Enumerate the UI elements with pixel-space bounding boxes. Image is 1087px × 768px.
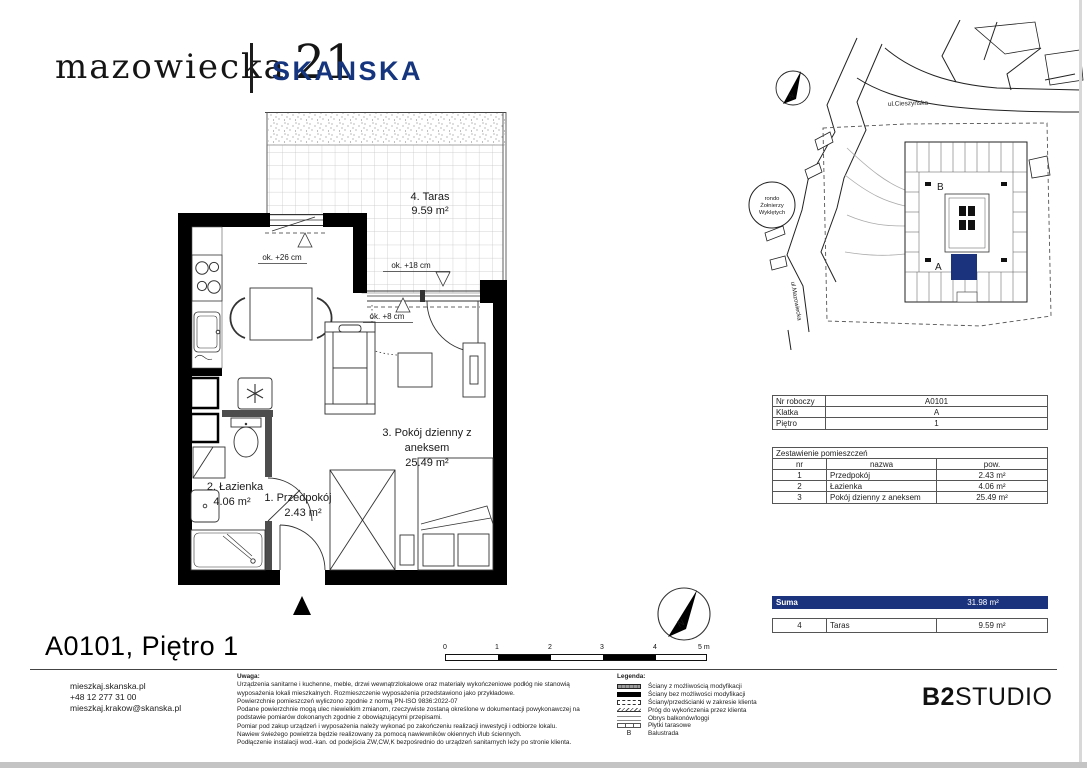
- terrace-name: Taras: [827, 619, 937, 632]
- studio-logo: B2STUDIO: [922, 683, 1052, 712]
- terrace-upper-band: [265, 112, 506, 145]
- entrance-arrow: [293, 596, 311, 615]
- room-name: Przedpokój: [827, 470, 937, 480]
- legend-threshold-icon: [617, 708, 641, 712]
- site-compass-icon: N: [776, 71, 810, 105]
- note-line: Powierzchnie pomieszczeń wyliczono zgodn…: [237, 698, 605, 706]
- bathroom-label: 2. Łazienka: [207, 481, 264, 493]
- terrace-area: 9.59 m²: [411, 205, 449, 217]
- hob-icon: [192, 255, 222, 301]
- contact-website-link[interactable]: mieszkaj.skanska.pl: [70, 681, 181, 692]
- legend-label: Ściany z możliwością modyfikacji: [648, 683, 742, 690]
- entrance-door: [280, 525, 325, 570]
- shower-icon: [191, 530, 265, 570]
- legend-label: Ściany/przedścianki w zakresie klienta: [648, 699, 757, 706]
- studio-logo-rest: STUDIO: [955, 683, 1052, 711]
- building-a-label: A: [935, 262, 942, 273]
- notes-block: Uwaga: Urządzenia sanitarne i kuchenne, …: [237, 673, 605, 748]
- legend-label: Płytki tarasowe: [648, 722, 691, 729]
- site-walkways: [845, 148, 905, 255]
- page-edge-right: [1079, 0, 1082, 768]
- legend-label: Balustrada: [648, 730, 679, 737]
- info-label: Klatka: [773, 407, 826, 417]
- legend-dashed-wall-icon: [617, 700, 641, 705]
- scale-bar: 0 1 2 3 4 5 m: [440, 644, 715, 666]
- floor-plan-page: mazowiecka 21 SKANSKA: [0, 0, 1087, 768]
- hall-label: 1. Przedpokój: [264, 492, 331, 504]
- level-kitchen-window: ok. +26 cm: [262, 253, 302, 262]
- living-room-label-1: 3. Pokój dzienny z: [382, 427, 471, 439]
- terrace-label: 4. Taras: [411, 191, 450, 203]
- highlighted-unit: [951, 254, 977, 280]
- legend-item: Ściany z możliwością modyfikacji: [617, 683, 847, 691]
- note-line: Nawiew świeżego powietrza będzie realizo…: [237, 731, 605, 739]
- site-map: B A rondo Żołnierzy Wyklętych ul.Cieszyń…: [745, 20, 1085, 350]
- legend-balcony-outline-icon: [617, 716, 641, 721]
- building-b-label: B: [937, 182, 944, 193]
- scale-bar-segment: [603, 655, 656, 660]
- coffee-table: [398, 353, 432, 387]
- page-title: A0101, Piętro 1: [45, 631, 239, 662]
- summary-bar: Suma 31.98 m²: [772, 596, 1048, 609]
- table-row: Nr roboczy A0101: [773, 396, 1047, 407]
- room-nr: 3: [773, 492, 827, 503]
- toilet-icon: [231, 418, 261, 457]
- col-nazwa: nazwa: [827, 459, 937, 469]
- legend-balustrade-symbol: B: [617, 731, 641, 736]
- scale-tick: 1: [495, 644, 499, 651]
- note-line: Pomiar pod zakup urządzeń i wyposażenia …: [237, 723, 605, 731]
- kitchen-window: [265, 215, 327, 234]
- notes-title: Uwaga:: [237, 673, 605, 681]
- installation-shafts: [191, 378, 218, 442]
- bathroom-cabinet: [193, 447, 225, 478]
- scale-bar-track: [445, 654, 707, 661]
- room-nr: 1: [773, 470, 827, 480]
- scale-bar-segment: [498, 655, 551, 660]
- summary-value: 31.98 m²: [938, 598, 1028, 607]
- footer-divider: [30, 669, 1057, 670]
- hall-area: 2.43 m²: [284, 507, 322, 519]
- legend-label: Ściany bez możliwości modyfikacji: [648, 691, 745, 698]
- info-value: A0101: [826, 396, 1047, 406]
- floor-plan-drawing: 4. Taras 9.59 m² ok. +26 cm ok. +18 cm o…: [165, 100, 520, 650]
- info-value: A: [826, 407, 1047, 417]
- scale-tick: 4: [653, 644, 657, 651]
- roundabout-label-3: Wyklętych: [759, 210, 785, 216]
- legend-item: Płytki tarasowe: [617, 722, 847, 730]
- sofa: [325, 322, 375, 414]
- plan-compass-icon: N: [653, 583, 715, 645]
- scale-tick: 0: [443, 644, 447, 651]
- studio-logo-bold: B2: [922, 683, 955, 711]
- roundabout: rondo Żołnierzy Wyklętych: [749, 182, 795, 228]
- legend-label: Obrys balkonów/loggi: [648, 715, 709, 722]
- info-value: 1: [826, 418, 1047, 429]
- roundabout-label-1: rondo: [765, 196, 780, 202]
- street-left-label: ul.Mazowiecka: [789, 281, 802, 321]
- unit-info-table: Nr roboczy A0101 Klatka A Piętro 1: [772, 395, 1048, 430]
- legend-item: B Balustrada: [617, 730, 847, 738]
- info-label: Nr roboczy: [773, 396, 826, 406]
- note-line: Podane powierzchnie mogą ulec niewielkim…: [237, 706, 605, 723]
- room-area: 4.06 m²: [937, 481, 1047, 491]
- terrace-row-table: 4 Taras 9.59 m²: [772, 618, 1048, 633]
- page-edge-bottom: [0, 762, 1087, 768]
- legend-item: Obrys balkonów/loggi: [617, 714, 847, 722]
- street-top-label: ul.Cieszyńska: [888, 100, 929, 108]
- brand-divider: [250, 43, 253, 93]
- table-row: Klatka A: [773, 407, 1047, 418]
- terrace-area-value: 9.59 m²: [937, 619, 1047, 632]
- legend-block: Legenda: Ściany z możliwością modyfikacj…: [617, 673, 847, 738]
- level-terrace-door: ok. +8 cm: [370, 312, 405, 321]
- sink-icon: [194, 312, 220, 352]
- summary-label: Suma: [776, 598, 798, 607]
- col-pow: pow.: [937, 459, 1047, 469]
- rooms-table-title-row: Zestawienie pomieszczeń: [773, 448, 1047, 459]
- legend-item: Próg do wykończenia przez klienta: [617, 706, 847, 714]
- scale-tick: 3: [600, 644, 604, 651]
- legend-wall-black-icon: [617, 692, 641, 697]
- rooms-table-title: Zestawienie pomieszczeń: [773, 448, 1047, 458]
- developer-logo: SKANSKA: [272, 56, 423, 87]
- legend-terrace-tiles-icon: [617, 723, 641, 728]
- level-terrace-window: ok. +18 cm: [391, 261, 431, 270]
- kitchen-fixtures: [192, 227, 222, 368]
- info-label: Piętro: [773, 418, 826, 429]
- terrace-nr: 4: [773, 619, 827, 632]
- fridge-icon: [238, 378, 272, 409]
- living-room-label-2: aneksem: [405, 442, 450, 454]
- table-row: 1 Przedpokój 2.43 m²: [773, 470, 1047, 481]
- legend-wall-gray-icon: [617, 684, 641, 689]
- room-area: 25.49 m²: [937, 492, 1047, 503]
- contact-phone: +48 12 277 31 00: [70, 692, 181, 703]
- rooms-table-header: nr nazwa pow.: [773, 459, 1047, 470]
- bathroom-area: 4.06 m²: [213, 496, 251, 508]
- dining-table: [230, 288, 331, 340]
- nightstand: [400, 535, 414, 565]
- tv-cabinet: [463, 343, 485, 397]
- room-name: Pokój dzienny z aneksem: [827, 492, 937, 503]
- table-row: 4 Taras 9.59 m²: [773, 619, 1047, 632]
- rooms-table: Zestawienie pomieszczeń nr nazwa pow. 1 …: [772, 447, 1048, 504]
- table-row: 2 Łazienka 4.06 m²: [773, 481, 1047, 492]
- legend-title: Legenda:: [617, 673, 847, 680]
- room-name: Łazienka: [827, 481, 937, 491]
- scale-tick: 2: [548, 644, 552, 651]
- room-area: 2.43 m²: [937, 470, 1047, 480]
- bed: [418, 458, 493, 570]
- table-row: Piętro 1: [773, 418, 1047, 429]
- room-nr: 2: [773, 481, 827, 491]
- legend-label: Próg do wykończenia przez klienta: [648, 707, 746, 714]
- note-line: Urządzenia sanitarne i kuchenne, meble, …: [237, 681, 605, 698]
- table-row: 3 Pokój dzienny z aneksem 25.49 m²: [773, 492, 1047, 503]
- wardrobe: [330, 470, 395, 570]
- contact-email-link[interactable]: mieszkaj.krakow@skanska.pl: [70, 703, 181, 714]
- building-plan: B A: [905, 142, 1027, 302]
- scale-tick: 5 m: [698, 644, 710, 651]
- roundabout-label-2: Żołnierzy: [760, 202, 784, 209]
- note-line: Podłączenie instalacji wod.-kan. od pode…: [237, 739, 605, 747]
- contact-block: mieszkaj.skanska.pl +48 12 277 31 00 mie…: [70, 681, 181, 714]
- legend-item: Ściany bez możliwości modyfikacji: [617, 691, 847, 699]
- col-nr: nr: [773, 459, 827, 469]
- legend-item: Ściany/przedścianki w zakresie klienta: [617, 699, 847, 707]
- living-room-area: 25.49 m²: [405, 457, 449, 469]
